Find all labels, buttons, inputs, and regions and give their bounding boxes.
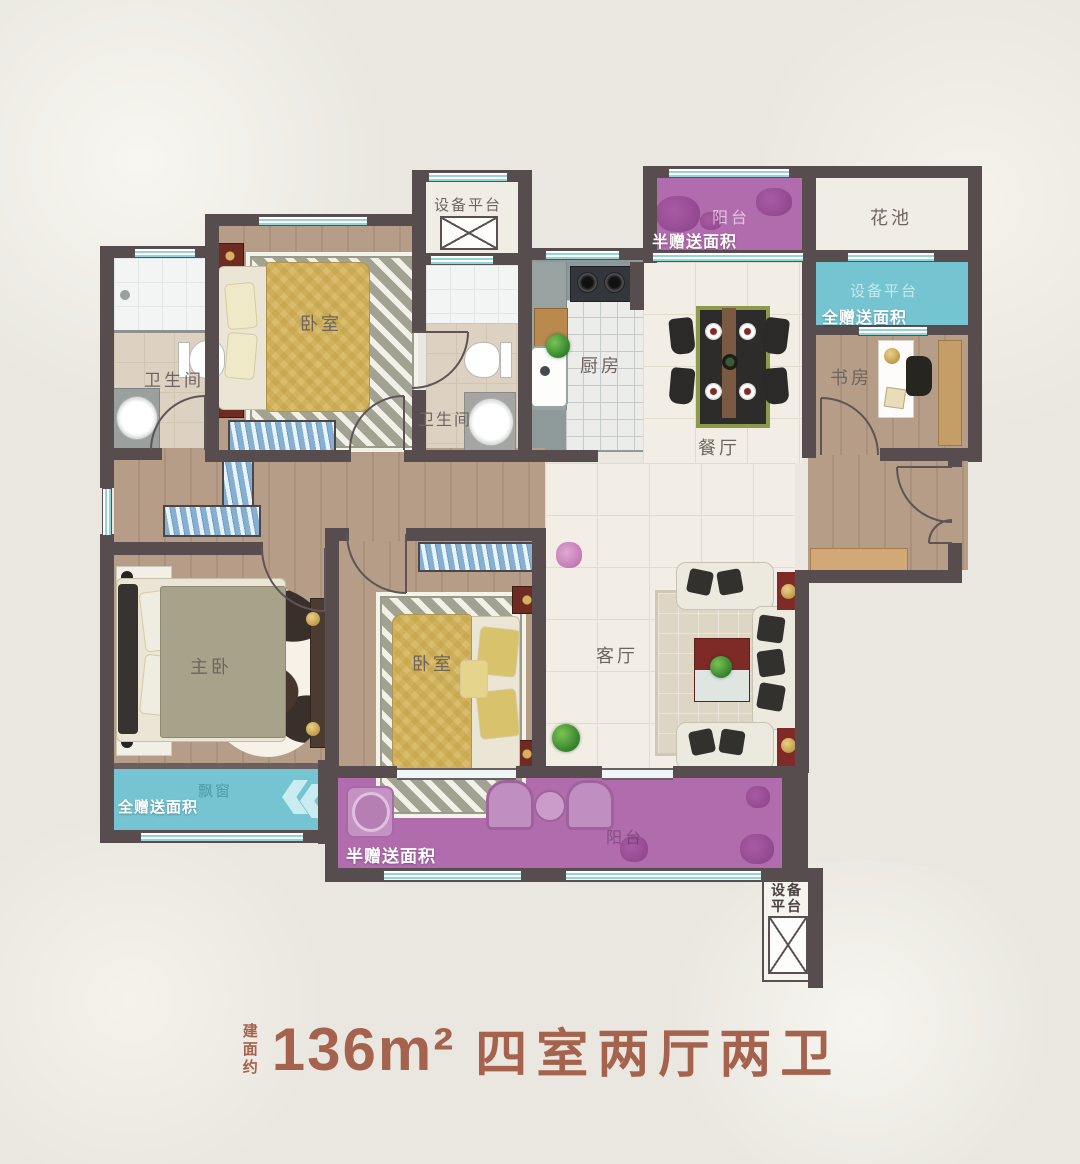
bath-mid-door-arc: [412, 332, 468, 388]
door-arcs: [0, 0, 1080, 1164]
sliding-door: [397, 768, 516, 780]
label-equip-bottom: 设备 平台: [762, 882, 812, 914]
bedroom-bottom-door-arc: [347, 534, 406, 593]
label-balcony-bottom: 阳台: [606, 824, 644, 848]
sliding-door: [602, 768, 673, 780]
label-bedroom-bottom: 卧室: [412, 650, 454, 676]
label-kitchen: 厨房: [580, 352, 622, 378]
label-master: 主卧: [190, 653, 232, 679]
label-balcony-top: 阳台: [712, 204, 750, 228]
label-equip-bottom-line1: 设备: [762, 882, 812, 898]
window: [383, 870, 522, 881]
window: [545, 250, 620, 260]
window: [565, 870, 762, 881]
title-layout-spec: 四室两厅两卫: [475, 1012, 841, 1087]
label-equip-bottom-line2: 平台: [762, 898, 812, 914]
label-dining: 餐厅: [698, 434, 740, 460]
window: [140, 832, 304, 842]
label-equip-right: 设备平台: [850, 280, 918, 301]
master-door-arc: [262, 548, 325, 611]
study-door-arc: [821, 398, 878, 455]
label-living: 客厅: [596, 642, 638, 668]
window: [847, 252, 935, 262]
label-bath-left: 卫生间: [144, 366, 204, 391]
label-study: 书房: [830, 364, 872, 390]
badge-bay-window: 全赠送面积: [118, 796, 198, 817]
bath-left-door-arc: [151, 396, 205, 450]
title-prefix: 建面约: [239, 1023, 260, 1077]
window: [428, 172, 508, 182]
bedroom-top-door-arc: [350, 396, 404, 450]
title-area: 136m²: [272, 1015, 455, 1084]
window: [102, 488, 112, 536]
entry-door-arc: [897, 467, 952, 522]
window: [258, 216, 368, 226]
window: [652, 252, 804, 262]
window: [430, 255, 494, 265]
floor-plan-image: 卫生间 卧室 设备平台 卫生间 厨房 阳台 半赠送面积 花池 设备平台 全赠送面…: [0, 0, 1080, 1164]
window: [134, 248, 196, 258]
label-equip-top: 设备平台: [434, 194, 502, 215]
badge-balcony-bottom: 半赠送面积: [346, 842, 436, 867]
label-bath-mid: 卫生间: [418, 406, 472, 430]
label-flower-bed: 花池: [870, 204, 912, 230]
window: [668, 168, 790, 178]
badge-balcony-top: 半赠送面积: [652, 228, 737, 252]
badge-equip-right: 全赠送面积: [822, 304, 907, 328]
label-bedroom-top: 卧室: [300, 310, 342, 336]
entry-door-arc-small: [929, 520, 952, 543]
plan-title: 建面约 136m² 四室两厅两卫: [0, 1012, 1080, 1087]
label-bay-window: 飘窗: [198, 780, 232, 801]
